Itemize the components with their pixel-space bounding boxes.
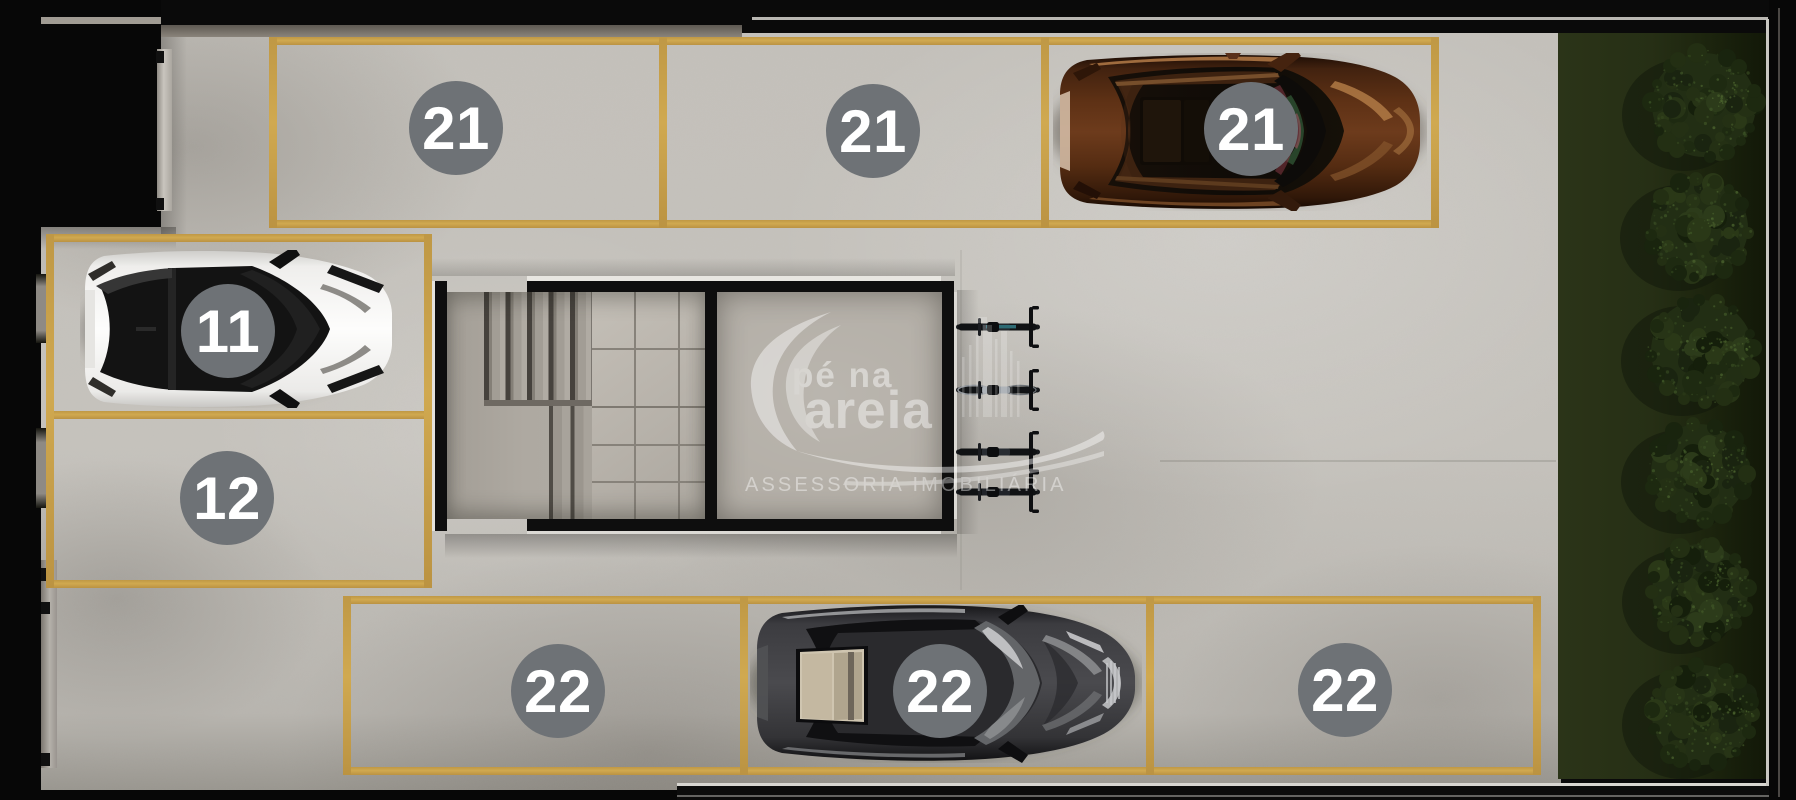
- svg-text:ASSESSORIA IMOBILIÁRIA: ASSESSORIA IMOBILIÁRIA: [745, 473, 1067, 496]
- svg-text:areia: areia: [804, 381, 933, 440]
